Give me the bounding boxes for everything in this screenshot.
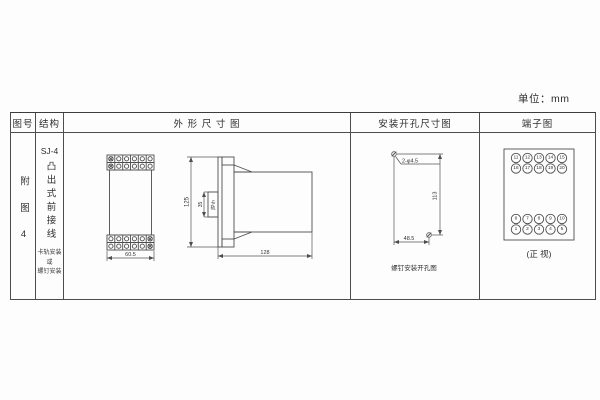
mounting-caption: 螺钉安装开孔图 — [391, 263, 437, 272]
dim-vertical-spacing: 113 — [433, 192, 439, 201]
terminal-number: 18 — [536, 165, 542, 171]
header-structure: 结构 — [36, 113, 64, 132]
header-terminal: 端子图 — [480, 113, 595, 132]
terminal-number: 17 — [525, 165, 531, 171]
cell-terminal-diagram: 11 12 13 14 15 16 17 18 19 20 6 7 8 9 — [480, 133, 595, 299]
model-label: SJ-4 — [41, 146, 58, 156]
terminal-number: 14 — [548, 155, 554, 161]
cell-outline-drawing: 60.5 125 35 128 卡轨 — [64, 133, 351, 299]
page: 单位：mm 图号 结构 外 形 尺 寸 图 安装开孔尺寸图 端子图 附图4 SJ… — [0, 0, 600, 400]
terminal-number: 19 — [548, 165, 554, 171]
unit-label: 单位：mm — [518, 91, 570, 106]
dim-overall-height: 125 — [185, 196, 191, 207]
terminal-number: 20 — [559, 165, 565, 171]
terminal-number: 13 — [536, 155, 542, 161]
terminal-number: 12 — [525, 155, 531, 161]
cell-structure: SJ-4 凸出式前接线 卡轨安装 或 螺钉安装 — [36, 133, 64, 299]
header-mounting: 安装开孔尺寸图 — [351, 113, 480, 132]
mount-note: 卡轨安装 或 螺钉安装 — [37, 249, 61, 278]
terminal-number: 2 — [526, 226, 529, 232]
side-view — [208, 157, 312, 247]
outline-dimension-drawing: 60.5 125 35 128 — [64, 133, 351, 302]
rail-label: 卡轨 — [208, 193, 218, 217]
wiring-type-label: 凸出式前接线 — [43, 161, 57, 242]
mount-note-line2: 或 — [37, 259, 61, 269]
dim-rail-height: 35 — [198, 202, 204, 208]
terminal-number: 16 — [513, 165, 519, 171]
table-header-row: 图号 结构 外 形 尺 寸 图 安装开孔尺寸图 端子图 — [11, 113, 595, 133]
terminal-number: 1 — [515, 226, 518, 232]
table-body-row: 附图4 SJ-4 凸出式前接线 卡轨安装 或 螺钉安装 — [11, 133, 595, 299]
terminal-number: 8 — [538, 216, 541, 222]
dim-overall-depth: 128 — [260, 250, 269, 256]
dim-horizontal-spacing: 48.5 — [404, 236, 415, 242]
terminal-number: 15 — [559, 155, 565, 161]
mounting-hole-drawing: 2-φ4.5 113 48.5 螺钉安装开孔图 — [351, 133, 480, 302]
dim-front-width: 60.5 — [125, 252, 136, 258]
terminal-number: 9 — [549, 216, 552, 222]
terminal-number: 7 — [526, 216, 529, 222]
header-fig-no: 图号 — [11, 113, 36, 132]
terminal-number: 11 — [514, 155, 519, 161]
cell-mounting-drawing: 2-φ4.5 113 48.5 螺钉安装开孔图 — [351, 133, 480, 299]
spec-table: 图号 结构 外 形 尺 寸 图 安装开孔尺寸图 端子图 附图4 SJ-4 凸出式… — [10, 112, 596, 300]
front-view — [107, 155, 154, 250]
terminal-number: 4 — [549, 226, 552, 232]
terminal-number: 10 — [559, 216, 565, 222]
terminal-caption: (正 视) — [526, 249, 551, 259]
mounting-holes — [392, 152, 432, 238]
terminal-diagram: 11 12 13 14 15 16 17 18 19 20 6 7 8 9 — [480, 133, 597, 302]
terminal-number: 3 — [538, 226, 541, 232]
mount-note-line1: 卡轨安装 — [37, 249, 61, 259]
fig-no-label: 附图4 — [16, 176, 30, 257]
terminal-number: 5 — [561, 226, 564, 232]
mount-note-line3: 螺钉安装 — [37, 268, 61, 278]
terminal-number: 6 — [515, 216, 518, 222]
cell-fig-no: 附图4 — [11, 133, 36, 299]
header-outline: 外 形 尺 寸 图 — [64, 113, 351, 132]
hole-spec-label: 2-φ4.5 — [402, 159, 418, 165]
